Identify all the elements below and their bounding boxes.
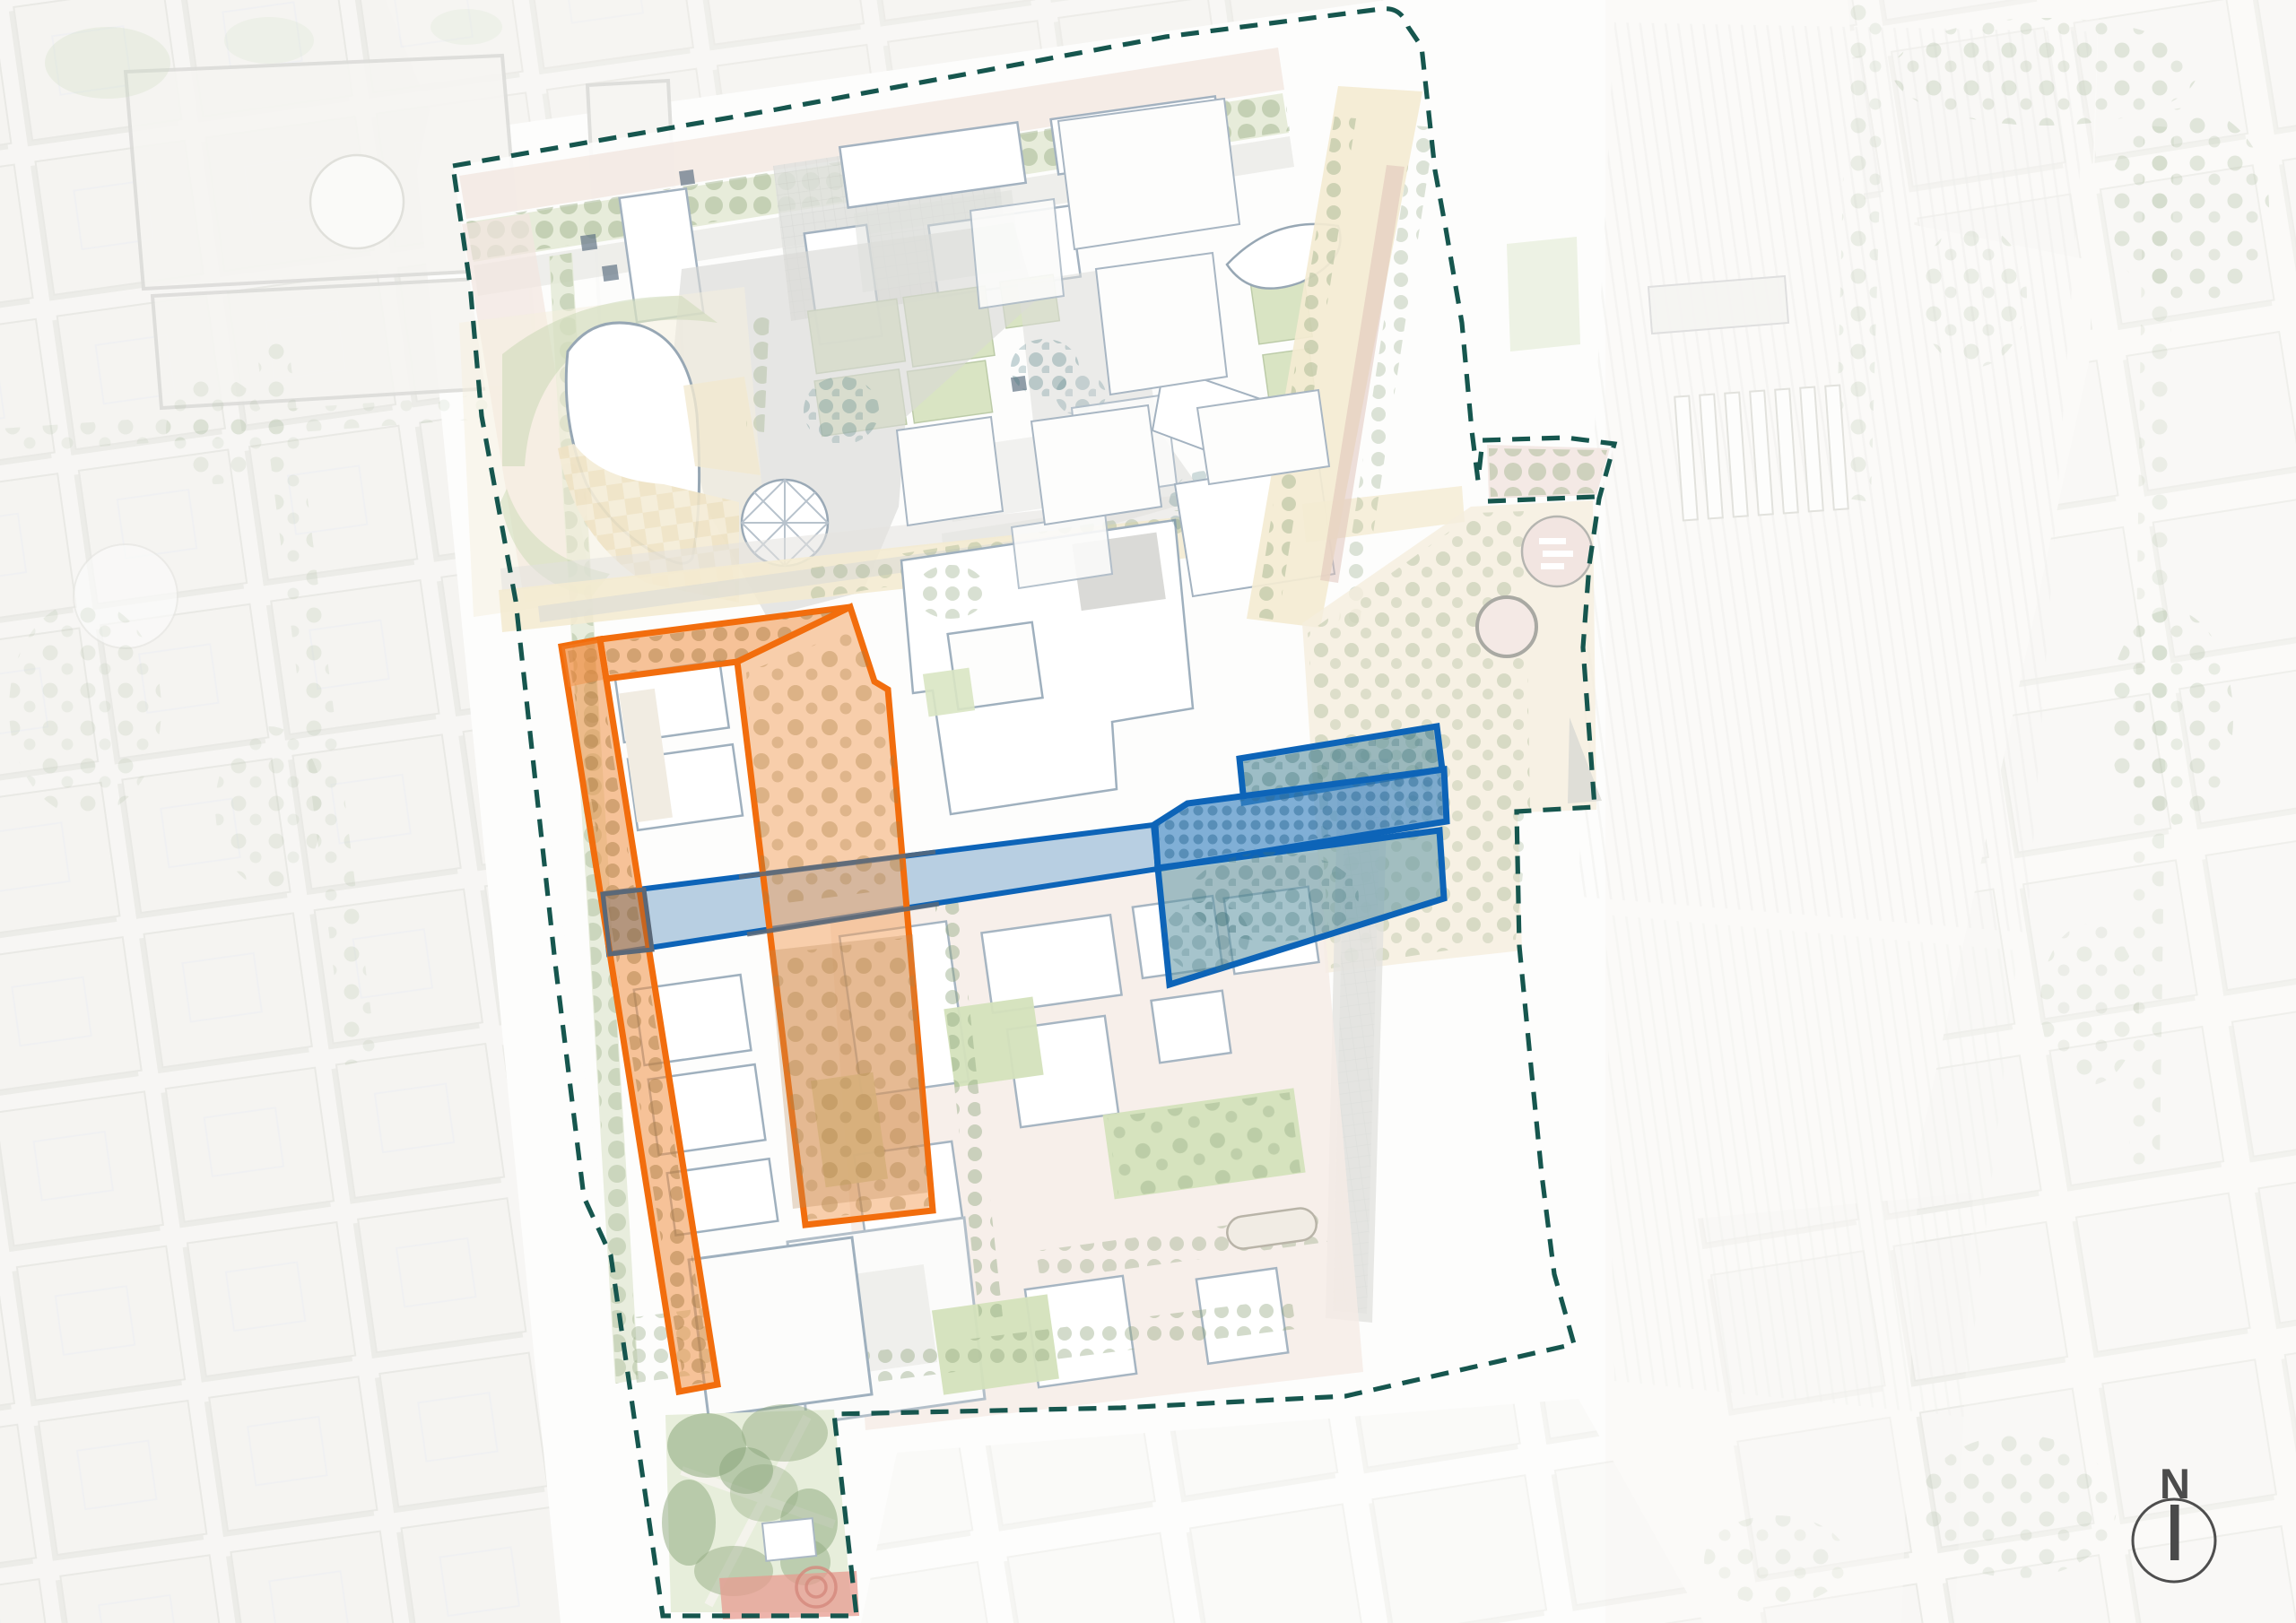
svg-text:N: N — [2160, 1460, 2190, 1507]
